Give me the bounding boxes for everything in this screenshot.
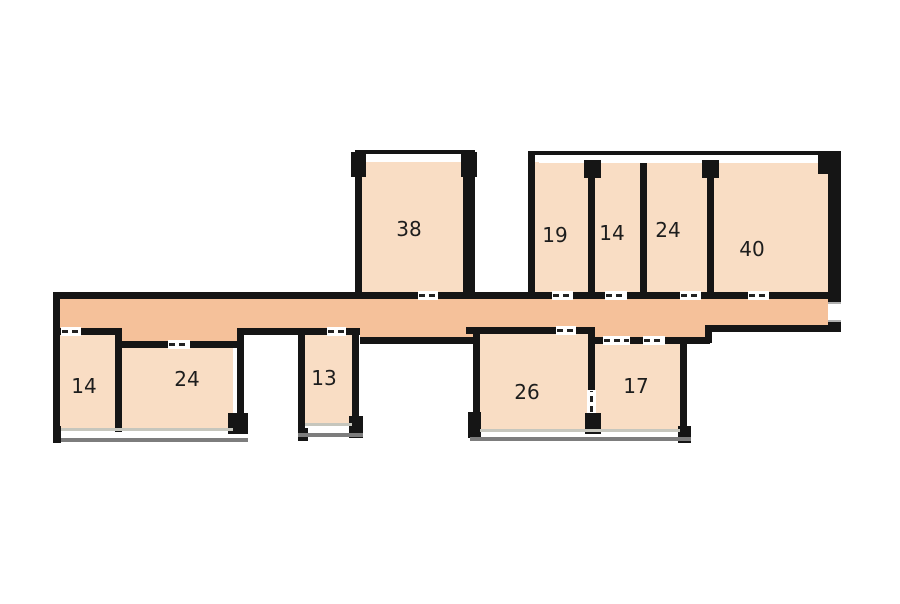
door-opening-room24-bottom xyxy=(168,340,190,349)
room-14-top-label: 14 xyxy=(599,223,624,243)
door-opening-room13 xyxy=(327,327,346,336)
wall-pier xyxy=(818,151,841,174)
wall-right-wing-window-line xyxy=(528,151,841,155)
door-jamb xyxy=(828,302,841,304)
room-24-bottom-label: 24 xyxy=(174,369,199,389)
room-24-top-label: 24 xyxy=(655,220,680,240)
door-opening-room14-top xyxy=(605,291,627,300)
corridor-floor xyxy=(59,298,828,325)
wall-pier xyxy=(351,152,366,177)
wall-room13-left xyxy=(298,328,305,432)
window-outer-line xyxy=(470,437,691,441)
door-opening-room26-17 xyxy=(587,390,596,413)
door-opening-room17-a xyxy=(603,336,630,345)
wall-corridor-step xyxy=(705,325,712,343)
wall-room17-right xyxy=(680,337,687,429)
door-opening-room17-b xyxy=(643,336,665,345)
door-opening-room26 xyxy=(556,326,576,335)
wall-pier xyxy=(461,152,477,177)
corridor-floor-segment xyxy=(122,325,237,341)
wall-corridor-top xyxy=(53,292,841,299)
wall-room19-14-divider xyxy=(588,162,595,298)
window-sill xyxy=(305,423,352,426)
door-opening-corridor-right xyxy=(828,302,841,322)
window xyxy=(539,155,818,163)
door-opening-room24-top xyxy=(680,291,701,300)
door-jamb xyxy=(828,320,841,322)
wall-left-outer xyxy=(53,292,60,443)
door-opening-room40 xyxy=(748,291,769,300)
wall-room24b-right xyxy=(237,328,244,420)
room-17-label: 17 xyxy=(623,376,648,396)
door-opening-room38 xyxy=(418,291,438,300)
window xyxy=(366,154,461,162)
wall-right-outer-upper xyxy=(828,153,841,302)
wall-room26-left xyxy=(473,327,480,415)
wall-room24-40-divider xyxy=(707,162,714,298)
wall-room19-left xyxy=(528,151,535,298)
wall-room13-right xyxy=(352,328,359,418)
window-sill xyxy=(60,428,233,431)
window-sill xyxy=(480,429,680,432)
wall-room14b-24b-divider xyxy=(115,328,122,432)
room-40-label: 40 xyxy=(739,239,764,259)
wall-right-outer-lower xyxy=(828,322,841,331)
wall-pier xyxy=(53,426,61,443)
wall-corridor-bottom xyxy=(705,325,841,332)
room-14-bottom-label: 14 xyxy=(71,376,96,396)
door-opening-room19 xyxy=(552,291,573,300)
room-26-label: 26 xyxy=(514,382,539,402)
wall-corridor-bottom xyxy=(360,337,473,344)
window-outer-line xyxy=(298,433,363,437)
floor-plan: 38 19 14 24 40 14 24 13 26 17 xyxy=(0,0,900,604)
room-13-label: 13 xyxy=(311,368,336,388)
wall-room38-window-line xyxy=(355,150,475,154)
door-opening-room14-bottom xyxy=(61,327,81,336)
wall-pier xyxy=(468,412,481,438)
room-40-floor xyxy=(714,162,828,292)
room-19-label: 19 xyxy=(542,225,567,245)
wall-room26-17-divider xyxy=(588,327,595,390)
wall-pier xyxy=(584,160,601,178)
room-38-label: 38 xyxy=(396,219,421,239)
wall-room14-24-divider xyxy=(640,163,647,298)
window-outer-line xyxy=(53,438,248,442)
wall-pier xyxy=(702,160,719,178)
